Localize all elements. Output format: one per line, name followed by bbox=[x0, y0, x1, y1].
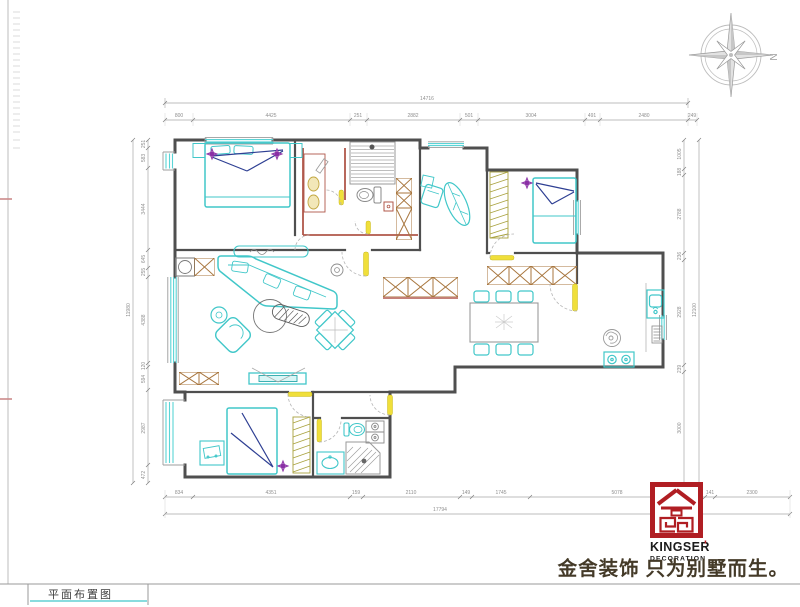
nightstand bbox=[200, 441, 224, 465]
dim: 4351 bbox=[265, 490, 276, 496]
corner-shower bbox=[346, 442, 380, 474]
dim: 159 bbox=[352, 490, 361, 496]
dining-room bbox=[470, 291, 538, 355]
logo-apostrophe: ' bbox=[704, 538, 707, 552]
hallway bbox=[420, 175, 475, 229]
dim-left-total: 11980 bbox=[126, 303, 132, 317]
bathroom-master bbox=[304, 142, 395, 212]
dim: 4425 bbox=[265, 113, 276, 119]
dim: 3004 bbox=[525, 113, 536, 119]
washer bbox=[366, 421, 384, 443]
sheet-edge bbox=[0, 0, 20, 584]
game-table bbox=[307, 302, 364, 359]
lamp-icon bbox=[207, 149, 217, 159]
toilet bbox=[344, 423, 365, 436]
dim-right-total: 12100 bbox=[692, 303, 698, 317]
tv-cabinet bbox=[249, 368, 306, 384]
dim: 141 bbox=[706, 490, 715, 496]
dim: 236 bbox=[677, 252, 683, 261]
dim: 4388 bbox=[141, 314, 147, 325]
compass-rose bbox=[689, 13, 773, 97]
armchair bbox=[213, 315, 253, 355]
dim: 251 bbox=[141, 140, 147, 149]
cabinet-column bbox=[396, 178, 412, 240]
dim: 2300 bbox=[746, 490, 757, 496]
low-cabinets bbox=[179, 372, 219, 385]
vanity bbox=[317, 452, 344, 474]
tv bbox=[259, 376, 297, 382]
bath-walls bbox=[303, 148, 418, 235]
dim: 645 bbox=[141, 255, 147, 264]
wardrobe bbox=[490, 172, 508, 238]
sheet-edge-notes bbox=[13, 12, 20, 148]
stove bbox=[604, 352, 634, 367]
dim: 120 bbox=[141, 362, 147, 371]
dim: 149 bbox=[462, 490, 471, 496]
drain bbox=[370, 145, 375, 150]
brand-tagline: 金舍装饰 只为别墅而生。 bbox=[557, 557, 789, 580]
heater bbox=[652, 326, 662, 343]
stool bbox=[421, 175, 434, 188]
dim-bottom-total: 17794 bbox=[433, 507, 447, 513]
dim: 239 bbox=[677, 365, 683, 374]
dim: 2928 bbox=[677, 306, 683, 317]
compass-north-label: N bbox=[767, 53, 778, 60]
dim: 501 bbox=[465, 113, 474, 119]
bedroom-third bbox=[200, 408, 310, 474]
title-block: 平面布置图 bbox=[0, 584, 800, 605]
bed-blanket bbox=[212, 150, 283, 171]
dim: 249 bbox=[688, 113, 697, 119]
wardrobe-row bbox=[487, 266, 577, 285]
speaker bbox=[331, 264, 343, 276]
dim: 583 bbox=[141, 154, 147, 163]
dim-top-total: 14716 bbox=[420, 96, 434, 102]
dim: 2987 bbox=[141, 422, 147, 433]
dim: 3444 bbox=[141, 203, 147, 214]
wardrobe bbox=[293, 417, 310, 473]
bathroom-second bbox=[317, 421, 384, 474]
kitchen-sink bbox=[647, 290, 664, 318]
dim: 1005 bbox=[677, 148, 683, 159]
dim: 2788 bbox=[677, 208, 683, 219]
logo-brand-text: KINGSER bbox=[650, 540, 710, 554]
dim: 2110 bbox=[406, 490, 417, 496]
windows bbox=[163, 138, 666, 465]
dim: 2882 bbox=[407, 113, 418, 119]
plant bbox=[439, 179, 475, 229]
nightstand bbox=[193, 144, 205, 158]
bedroom-second bbox=[490, 172, 576, 243]
side-table bbox=[211, 307, 227, 323]
dim: 251 bbox=[354, 113, 363, 119]
dim: 2480 bbox=[638, 113, 649, 119]
living-room bbox=[176, 246, 364, 385]
mirror bbox=[316, 159, 328, 173]
dim: 491 bbox=[588, 113, 597, 119]
dim: 472 bbox=[141, 471, 147, 480]
dim: 834 bbox=[175, 490, 184, 496]
dim: 255 bbox=[141, 268, 147, 277]
window-glass bbox=[166, 140, 664, 463]
brand-logo: KINGSER ' DECORATION bbox=[650, 482, 710, 563]
dim: 188 bbox=[677, 168, 683, 177]
floor-plan-canvas: 14716 800 4425 251 2882 501 3004 491 248… bbox=[0, 0, 800, 607]
shower-area bbox=[350, 142, 395, 184]
sink bbox=[308, 177, 319, 191]
toilet bbox=[357, 187, 381, 203]
kitchen bbox=[604, 283, 665, 367]
bed-blanket bbox=[536, 183, 574, 204]
figure bbox=[604, 330, 621, 347]
lamp-icon bbox=[522, 178, 532, 188]
lamp-icon bbox=[278, 461, 288, 471]
bed-blanket bbox=[231, 413, 273, 467]
drawing-title: 平面布置图 bbox=[48, 588, 113, 601]
sink bbox=[308, 195, 319, 209]
dim: 3000 bbox=[677, 422, 683, 433]
dim: 5078 bbox=[611, 490, 622, 496]
entry-cabinet bbox=[383, 277, 458, 298]
dim: 594 bbox=[141, 375, 147, 384]
dim: 1745 bbox=[495, 490, 506, 496]
dim: 800 bbox=[175, 113, 184, 119]
